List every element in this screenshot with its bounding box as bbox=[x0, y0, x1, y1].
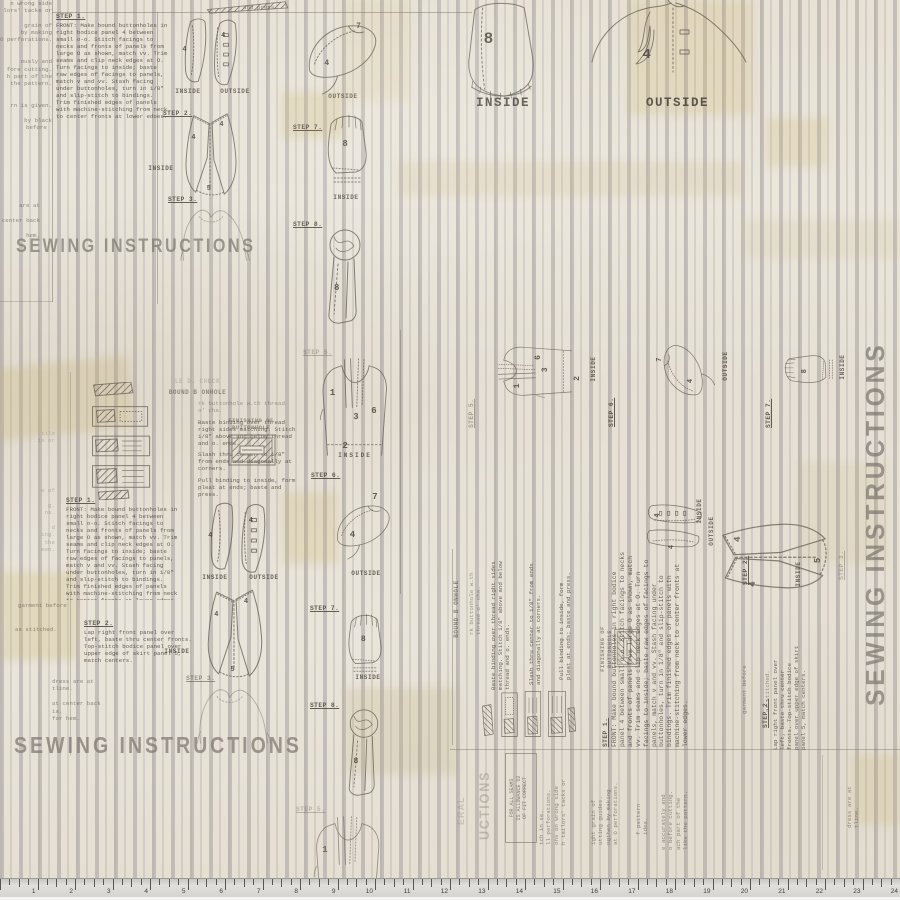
ruler-tick bbox=[797, 879, 798, 885]
margin-fragments: tch in se.ll perforations.ons on wrong s… bbox=[538, 749, 572, 845]
tape-band bbox=[398, 162, 743, 196]
ruler-tick bbox=[309, 879, 310, 885]
ruler-number: 6 bbox=[209, 888, 223, 895]
panel-number: 4 bbox=[749, 581, 758, 586]
inside-label: INSIDE bbox=[458, 96, 548, 110]
vneck-bodice-diagram: 4 4 5 bbox=[198, 586, 272, 680]
buttonhole-slash: Slash thru center to 1/8" from ends and … bbox=[528, 563, 556, 685]
panel-number: 5 bbox=[207, 186, 211, 193]
ruler-number: 5 bbox=[172, 888, 186, 895]
ruler-tick bbox=[684, 879, 685, 885]
margin-fragment: before bbox=[26, 124, 47, 131]
ruler-tick bbox=[244, 879, 245, 887]
step2-text: Lap right front panel over left, baste t… bbox=[772, 644, 826, 750]
facing-pair-diagram: 4 4 bbox=[188, 500, 280, 582]
heading-fragment: UCTIONS bbox=[476, 771, 492, 840]
ruler-tick bbox=[319, 879, 320, 887]
ruler-number: 11 bbox=[397, 888, 411, 895]
inside-label: INSIDE bbox=[141, 165, 181, 172]
ruler-tick bbox=[413, 879, 414, 890]
ruler-tick bbox=[347, 879, 348, 885]
ruler-number: 20 bbox=[734, 888, 748, 895]
ruler-tick bbox=[834, 879, 835, 885]
ruler-tick bbox=[47, 879, 48, 885]
buttonhole-pull: Pull binding to inside, form pleat at en… bbox=[198, 477, 300, 501]
panel-number: 1 bbox=[330, 389, 335, 398]
ruler-tick bbox=[647, 879, 648, 885]
ruler: 123456789101112131415161718192021222324 bbox=[0, 878, 900, 897]
outside-label: OUTSIDE bbox=[338, 570, 394, 577]
ruler-tick bbox=[759, 879, 760, 885]
sewing-instructions-heading: SEWING INSTRUCTIONS bbox=[16, 236, 256, 258]
panel-number: 4 bbox=[642, 48, 650, 62]
panel-number: 4 bbox=[214, 612, 218, 619]
inside-label: INSIDE bbox=[344, 674, 392, 681]
step-label: STEP 7. bbox=[765, 399, 772, 428]
jabot-bodice-diagram: 4 bbox=[588, 0, 753, 96]
ruler-number: 2 bbox=[59, 888, 73, 895]
ruler-number: 22 bbox=[809, 888, 823, 895]
panel-number: 4 bbox=[244, 599, 248, 606]
ruler-tick bbox=[422, 879, 423, 885]
outside-label: OUTSIDE bbox=[625, 96, 730, 110]
ruler-tick bbox=[572, 879, 573, 885]
ruler-tick bbox=[394, 879, 395, 887]
aged-patch bbox=[766, 118, 828, 166]
vneck-bodice-icon bbox=[198, 586, 272, 680]
ruler-tick bbox=[656, 879, 657, 887]
finishing-buttonhole-icon bbox=[228, 434, 276, 466]
step1-text: FRONT: Make bound buttonholes in right b… bbox=[56, 22, 168, 118]
fabric-swatch: and press. 7 4 OUTSIDE 8 INSIDE 4 OUTSID… bbox=[0, 0, 900, 900]
ruler-tick bbox=[441, 879, 442, 885]
step-label: STEP 2. bbox=[742, 556, 749, 585]
ruler-number: 12 bbox=[434, 888, 448, 895]
ruler-number: 17 bbox=[622, 888, 636, 895]
ruler-tick bbox=[169, 879, 170, 887]
ruler-tick bbox=[356, 879, 357, 887]
ruler-tick bbox=[263, 879, 264, 890]
ruler-number: 21 bbox=[772, 888, 786, 895]
ruler-tick bbox=[713, 879, 714, 890]
outside-label: OUTSIDE bbox=[238, 574, 290, 581]
sleeve-diagram: 8 bbox=[452, 0, 548, 104]
facing-pair-icon bbox=[638, 493, 716, 565]
panel-number: 4 bbox=[249, 518, 253, 525]
ruler-tick bbox=[769, 879, 770, 887]
ruler-tick bbox=[253, 879, 254, 885]
step1-text: FRONT: Make bound buttonholes in right b… bbox=[611, 549, 706, 747]
rolled-sleeve-diagram: 8 bbox=[342, 706, 386, 798]
panel-number: 5 bbox=[814, 558, 823, 563]
sleeve-cap-diagram: 8 bbox=[338, 610, 390, 678]
vneck-bodice-diagram: 4 4 5 bbox=[718, 497, 830, 615]
bound-buttonhole-steps-diagram bbox=[454, 682, 604, 738]
margin-fragments: n wrong sidelors' tacks or grain ofby ma… bbox=[0, 0, 52, 126]
ruler-tick bbox=[891, 879, 892, 885]
panel-number: 4 bbox=[191, 135, 195, 142]
ruler-number: 16 bbox=[584, 888, 598, 895]
rolled-sleeve-icon bbox=[320, 226, 370, 326]
ruler-number: 18 bbox=[659, 888, 673, 895]
ruler-tick bbox=[609, 879, 610, 885]
ruler-number: 24 bbox=[884, 888, 898, 895]
ruler-tick bbox=[384, 879, 385, 885]
ruler-tick bbox=[853, 879, 854, 885]
ruler-tick bbox=[150, 879, 151, 890]
panel-number: 6 bbox=[371, 407, 376, 416]
margin-fragment: as stitched. bbox=[15, 626, 57, 633]
ruler-number: 15 bbox=[547, 888, 561, 895]
ruler-tick bbox=[844, 879, 845, 887]
ruler-tick bbox=[450, 879, 451, 890]
ruler-tick bbox=[591, 879, 592, 885]
inside-label: INSIDE bbox=[696, 494, 703, 528]
ruler-tick bbox=[703, 879, 704, 885]
collar-icon bbox=[654, 339, 722, 402]
ruler-number: 4 bbox=[134, 888, 148, 895]
vneck-bodice-icon bbox=[176, 110, 246, 198]
ruler-tick bbox=[825, 879, 826, 890]
margin-fragments: are at center back hem. bbox=[0, 202, 40, 244]
panel-number: 4 bbox=[219, 122, 223, 129]
inside-label: INSIDE bbox=[322, 194, 370, 201]
panel-number: 8 bbox=[353, 758, 358, 766]
ruler-tick bbox=[328, 879, 329, 885]
ruler-number: 7 bbox=[247, 888, 261, 895]
margin-fragments: e accurately ando before cutting.ach par… bbox=[660, 748, 694, 850]
ruler-tick bbox=[113, 879, 114, 890]
panel-number: 8 bbox=[802, 369, 809, 373]
ruler-number: 1 bbox=[22, 888, 36, 895]
fit-note-box: FOR ALL SEAMSIS ALLOWANCE O2OF FIT CORRE… bbox=[505, 753, 537, 843]
panel-number: 7 bbox=[356, 23, 361, 31]
outside-label: OUTSIDE bbox=[210, 88, 260, 95]
ruler-tick bbox=[488, 879, 489, 890]
ruler-tick bbox=[0, 879, 1, 890]
ruler-tick bbox=[272, 879, 273, 885]
ruler-tick bbox=[103, 879, 104, 885]
panel-number: 2 bbox=[574, 376, 582, 381]
step-label: STEP 2. bbox=[84, 620, 113, 627]
buttonhole-pull: Pull binding to inside, form pleat at en… bbox=[558, 566, 588, 680]
panel-number: 3 bbox=[353, 413, 358, 422]
facing-pair-icon bbox=[163, 16, 251, 94]
ruler-tick bbox=[375, 879, 376, 890]
ruler-number: 14 bbox=[509, 888, 523, 895]
ruler-tick bbox=[806, 879, 807, 887]
sleeve-icon bbox=[452, 0, 548, 104]
inside-label: INSIDE bbox=[590, 352, 597, 386]
step-label: STEP 1. bbox=[66, 497, 95, 504]
inside-label: INSIDE bbox=[156, 648, 198, 655]
ruler-tick bbox=[366, 879, 367, 885]
ruler-tick bbox=[731, 879, 732, 887]
sheet-line bbox=[0, 301, 53, 302]
step-label: STEP 1. bbox=[602, 718, 609, 747]
ruler-tick bbox=[497, 879, 498, 885]
panel-number: 4 bbox=[208, 533, 212, 540]
sheet-line bbox=[822, 755, 823, 870]
margin-fragments: tileis or bbox=[0, 430, 55, 460]
margin-fragment: as stitched. bbox=[764, 670, 771, 712]
panel-number: 3 bbox=[542, 367, 550, 372]
facing-pair-icon bbox=[188, 500, 280, 582]
ruler-number: 13 bbox=[472, 888, 486, 895]
ruler-tick bbox=[403, 879, 404, 885]
vest-diagram: 1 3 6 2 bbox=[310, 356, 400, 458]
inside-label: INSIDE bbox=[192, 574, 238, 581]
step-label: STEP 1. bbox=[56, 13, 85, 20]
jabot-bodice-icon bbox=[588, 0, 753, 96]
margin-fragments: dress are attline. at center backis.for … bbox=[846, 766, 864, 828]
panel-number: 2 bbox=[342, 442, 347, 451]
ruler-tick bbox=[506, 879, 507, 887]
margin-fragment: garment before bbox=[741, 665, 748, 714]
ruler-tick bbox=[638, 879, 639, 890]
heading-fragment: ERAL bbox=[456, 797, 466, 826]
step1-text: FRONT: Make bound buttonholes in right b… bbox=[66, 506, 180, 600]
sewing-instructions-heading: SEWING INSTRUCTIONS bbox=[14, 732, 302, 759]
ruler-tick bbox=[206, 879, 207, 887]
ruler-number: 9 bbox=[322, 888, 336, 895]
facing-pair-diagram: 4 4 bbox=[638, 493, 716, 565]
ruler-tick bbox=[431, 879, 432, 887]
step-label: STEP 3. bbox=[838, 551, 845, 580]
buttonhole-steps-icon bbox=[454, 682, 604, 738]
step-label: STEP 7. bbox=[310, 605, 339, 612]
collar-icon bbox=[298, 20, 386, 96]
ruler-tick bbox=[469, 879, 470, 887]
rotated-sheet: BOUND B ONHOLE rk buttonhole w.th thread… bbox=[450, 480, 900, 880]
step-label: STEP 5. bbox=[468, 399, 475, 428]
rolled-sleeve-diagram: 8 bbox=[320, 226, 370, 326]
outside-label: OUTSIDE bbox=[308, 93, 378, 100]
ruler-tick bbox=[459, 879, 460, 885]
ruler-tick bbox=[56, 879, 57, 887]
inside-label: INSIDE bbox=[328, 452, 382, 459]
facing-pair-diagram: 4 4 bbox=[163, 16, 251, 94]
sheet-line bbox=[400, 330, 401, 594]
ruler-tick bbox=[881, 879, 882, 887]
buttonhole-baste: Baste binding over thread right sides ma… bbox=[490, 554, 526, 690]
step-label: STEP 5. bbox=[296, 806, 325, 813]
ruler-tick bbox=[778, 879, 779, 885]
ruler-number: 19 bbox=[697, 888, 711, 895]
vest-icon bbox=[477, 340, 593, 402]
outside-label: OUTSIDE bbox=[708, 512, 715, 550]
ruler-tick bbox=[581, 879, 582, 887]
panel-number: 1 bbox=[322, 846, 327, 855]
ruler-number: 3 bbox=[97, 888, 111, 895]
finishing-label: FINISHING OFBUTTONHOLE bbox=[218, 418, 284, 431]
panel-number: 7 bbox=[372, 493, 377, 502]
sleeve-cap-diagram: 8 bbox=[781, 349, 838, 391]
ruler-tick bbox=[19, 879, 20, 887]
ruler-number: 23 bbox=[847, 888, 861, 895]
collar-diagram: 7 4 bbox=[298, 20, 386, 96]
vneck-bodice-diagram: 4 4 5 bbox=[176, 110, 246, 198]
finishing-buttonhole-diagram bbox=[228, 434, 276, 466]
panel-number: 1 bbox=[514, 384, 522, 389]
margin-fragments: ight grain ofutting guides.ngthen by mak… bbox=[590, 749, 624, 845]
inside-label: INSIDE bbox=[166, 88, 210, 95]
ruler-tick bbox=[788, 879, 789, 890]
ruler-tick bbox=[66, 879, 67, 885]
margin-fragment: garment before bbox=[18, 602, 67, 609]
buttonhole-title: BOUND B ONHOLE bbox=[453, 553, 460, 665]
step-label: STEP 8. bbox=[293, 221, 322, 228]
ruler-tick bbox=[197, 879, 198, 885]
panel-number: 8 bbox=[334, 284, 339, 293]
sewing-instructions-heading: SEWING INSTRUCTIONS bbox=[860, 342, 891, 706]
ruler-tick bbox=[225, 879, 226, 890]
sleeve-cap-icon bbox=[781, 349, 838, 391]
ruler-tick bbox=[131, 879, 132, 887]
collar-icon bbox=[330, 490, 396, 572]
panel-number: 4 bbox=[669, 545, 676, 549]
sleeve-cap-icon bbox=[338, 610, 390, 678]
inside-label: INSIDE bbox=[795, 556, 802, 592]
vest-icon bbox=[310, 356, 400, 458]
ruler-tick bbox=[619, 879, 620, 887]
panel-number: 8 bbox=[361, 636, 366, 644]
press-note: and press. bbox=[243, 4, 278, 11]
panel-number: 4 bbox=[688, 379, 695, 383]
inside-label: INSIDE bbox=[839, 350, 846, 384]
step-label: STEP 6. bbox=[608, 398, 615, 427]
ruler-tick bbox=[816, 879, 817, 885]
sleeve-cap-diagram: 8 bbox=[316, 110, 376, 190]
vertical-heading: SEWING INSTRUCTIONS bbox=[858, 334, 894, 706]
ruler-tick bbox=[750, 879, 751, 890]
buttonhole-steps-icon bbox=[90, 382, 162, 500]
ruler-tick bbox=[525, 879, 526, 890]
panel-number: 8 bbox=[484, 31, 494, 47]
collar-diagram: 7 4 bbox=[654, 339, 722, 402]
ruler-tick bbox=[563, 879, 564, 890]
panel-number: 4 bbox=[350, 531, 355, 540]
ruler-tick bbox=[122, 879, 123, 885]
ruler-number: 8 bbox=[284, 888, 298, 895]
panel-number: 5 bbox=[231, 667, 235, 674]
aged-patch bbox=[744, 220, 900, 258]
bound-buttonhole-steps-diagram bbox=[90, 382, 162, 500]
ruler-tick bbox=[553, 879, 554, 885]
vneck-bodice-icon bbox=[718, 497, 830, 615]
ruler-tick bbox=[300, 879, 301, 890]
ruler-tick bbox=[338, 879, 339, 890]
step-label: STEP 8. bbox=[310, 702, 339, 709]
ruler-tick bbox=[141, 879, 142, 885]
rolled-sleeve-icon bbox=[342, 706, 386, 798]
panel-number: 6 bbox=[535, 355, 543, 360]
rotated-diagram-strip: STEP 5. 1 3 6 2 INSIDE STEP 6. 7 4 OUTSI… bbox=[450, 330, 880, 436]
ruler-tick bbox=[478, 879, 479, 885]
buttonhole-intro: rk buttonhole w.th thread o' cha. bbox=[468, 571, 486, 635]
ruler-tick bbox=[675, 879, 676, 890]
ruler-tick bbox=[872, 879, 873, 885]
margin-fragments: dress are attline. at center backis.for … bbox=[52, 678, 116, 728]
vest-diagram: 1 3 6 2 bbox=[477, 340, 593, 402]
ruler-tick bbox=[628, 879, 629, 885]
sleeve-cap-icon bbox=[316, 110, 376, 190]
panel-number: 4 bbox=[221, 33, 225, 40]
ruler-tick bbox=[38, 879, 39, 890]
ruler-tick bbox=[534, 879, 535, 885]
ruler-tick bbox=[666, 879, 667, 885]
ruler-tick bbox=[28, 879, 29, 885]
ruler-tick bbox=[178, 879, 179, 885]
ruler-number: 10 bbox=[359, 888, 373, 895]
ruler-tick bbox=[516, 879, 517, 885]
ruler-tick bbox=[216, 879, 217, 885]
ruler-tick bbox=[722, 879, 723, 885]
ruler-tick bbox=[863, 879, 864, 890]
panel-number: 4 bbox=[734, 536, 743, 541]
margin-fragments: s of g.ns. ding.theeen. bbox=[0, 487, 55, 577]
step-label: STEP 5. bbox=[303, 349, 332, 356]
ruler-tick bbox=[741, 879, 742, 885]
ruler-tick bbox=[544, 879, 545, 887]
step-label: STEP 6. bbox=[311, 472, 340, 479]
ruler-tick bbox=[9, 879, 10, 885]
ruler-tick bbox=[281, 879, 282, 887]
ruler-tick bbox=[94, 879, 95, 887]
outside-label: OUTSIDE bbox=[722, 348, 729, 384]
panel-number: 7 bbox=[657, 357, 664, 361]
panel-number: 8 bbox=[342, 140, 347, 149]
ruler-tick bbox=[291, 879, 292, 885]
ruler-tick bbox=[84, 879, 85, 885]
ruler-tick bbox=[234, 879, 235, 885]
ruler-tick bbox=[159, 879, 160, 885]
ruler-tick bbox=[600, 879, 601, 890]
collar-diagram: 7 4 bbox=[330, 490, 396, 572]
ruler-tick bbox=[75, 879, 76, 890]
ruler-tick bbox=[694, 879, 695, 887]
ruler-tick bbox=[188, 879, 189, 890]
buttonhole-intro: rk buttonhole w.th thread o' cha. bbox=[198, 400, 294, 416]
margin-fragments: f patternidea. bbox=[635, 753, 653, 835]
panel-number: 4 bbox=[324, 60, 329, 68]
panel-number: 4 bbox=[182, 47, 186, 54]
panel-number: 4 bbox=[655, 513, 662, 517]
